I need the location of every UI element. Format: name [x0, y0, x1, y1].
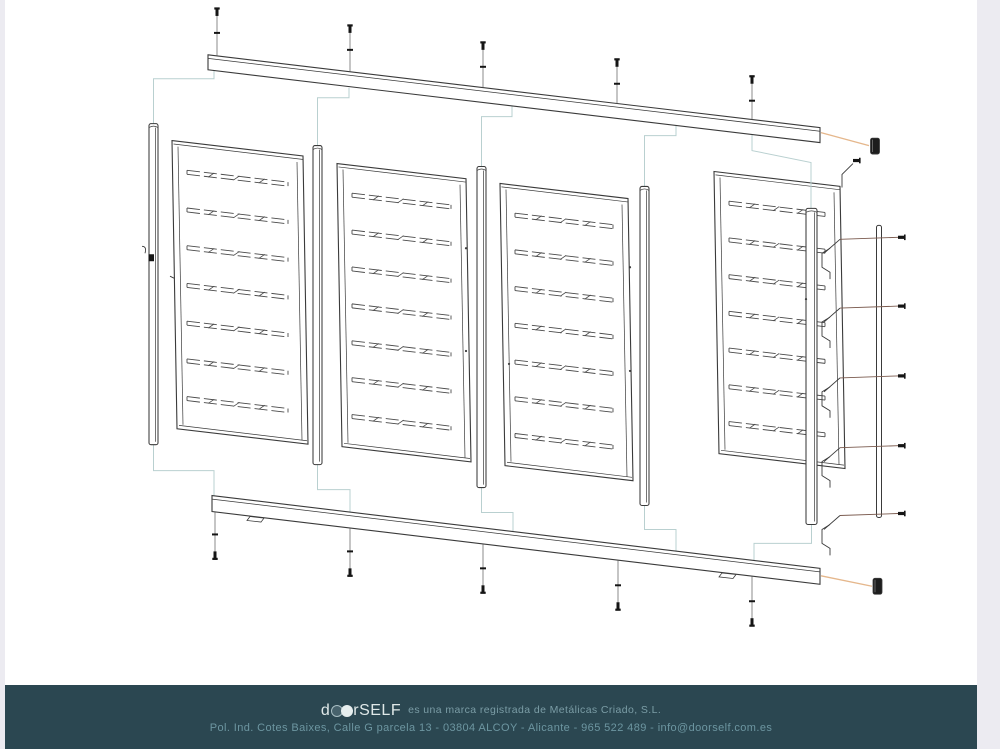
- trademark-text: es una marca registrada de Metálicas Cri…: [408, 702, 661, 719]
- post-2: [313, 146, 322, 465]
- logo-text-suffix: rSELF: [353, 702, 401, 719]
- post-5: [806, 208, 817, 524]
- logo-dot-light-icon: [341, 705, 353, 717]
- end-cap-bottom: [821, 576, 882, 594]
- top-rail: [208, 55, 820, 143]
- assembly-diagram-area: [5, 0, 977, 685]
- footer-address: Pol. Ind. Cotes Baixes, Calle G parcela …: [210, 722, 773, 734]
- exploded-assembly-diagram: [5, 0, 977, 685]
- bottom-rail-tabs: [247, 516, 736, 578]
- panel-2: [337, 164, 471, 462]
- bottom-rail: [212, 496, 820, 585]
- end-cap-top: [821, 133, 880, 154]
- logo-text-prefix: d: [321, 702, 330, 719]
- panel-3: [500, 183, 633, 480]
- document-page: d rSELF es una marca registrada de Metál…: [5, 0, 977, 749]
- cover-strip: [877, 225, 882, 517]
- footer-bar: d rSELF es una marca registrada de Metál…: [5, 685, 977, 749]
- doorself-logo: d rSELF: [321, 702, 401, 719]
- panel-1: [172, 141, 308, 445]
- post-3: [477, 167, 486, 488]
- post-4: [640, 186, 649, 505]
- post-1: [149, 124, 158, 445]
